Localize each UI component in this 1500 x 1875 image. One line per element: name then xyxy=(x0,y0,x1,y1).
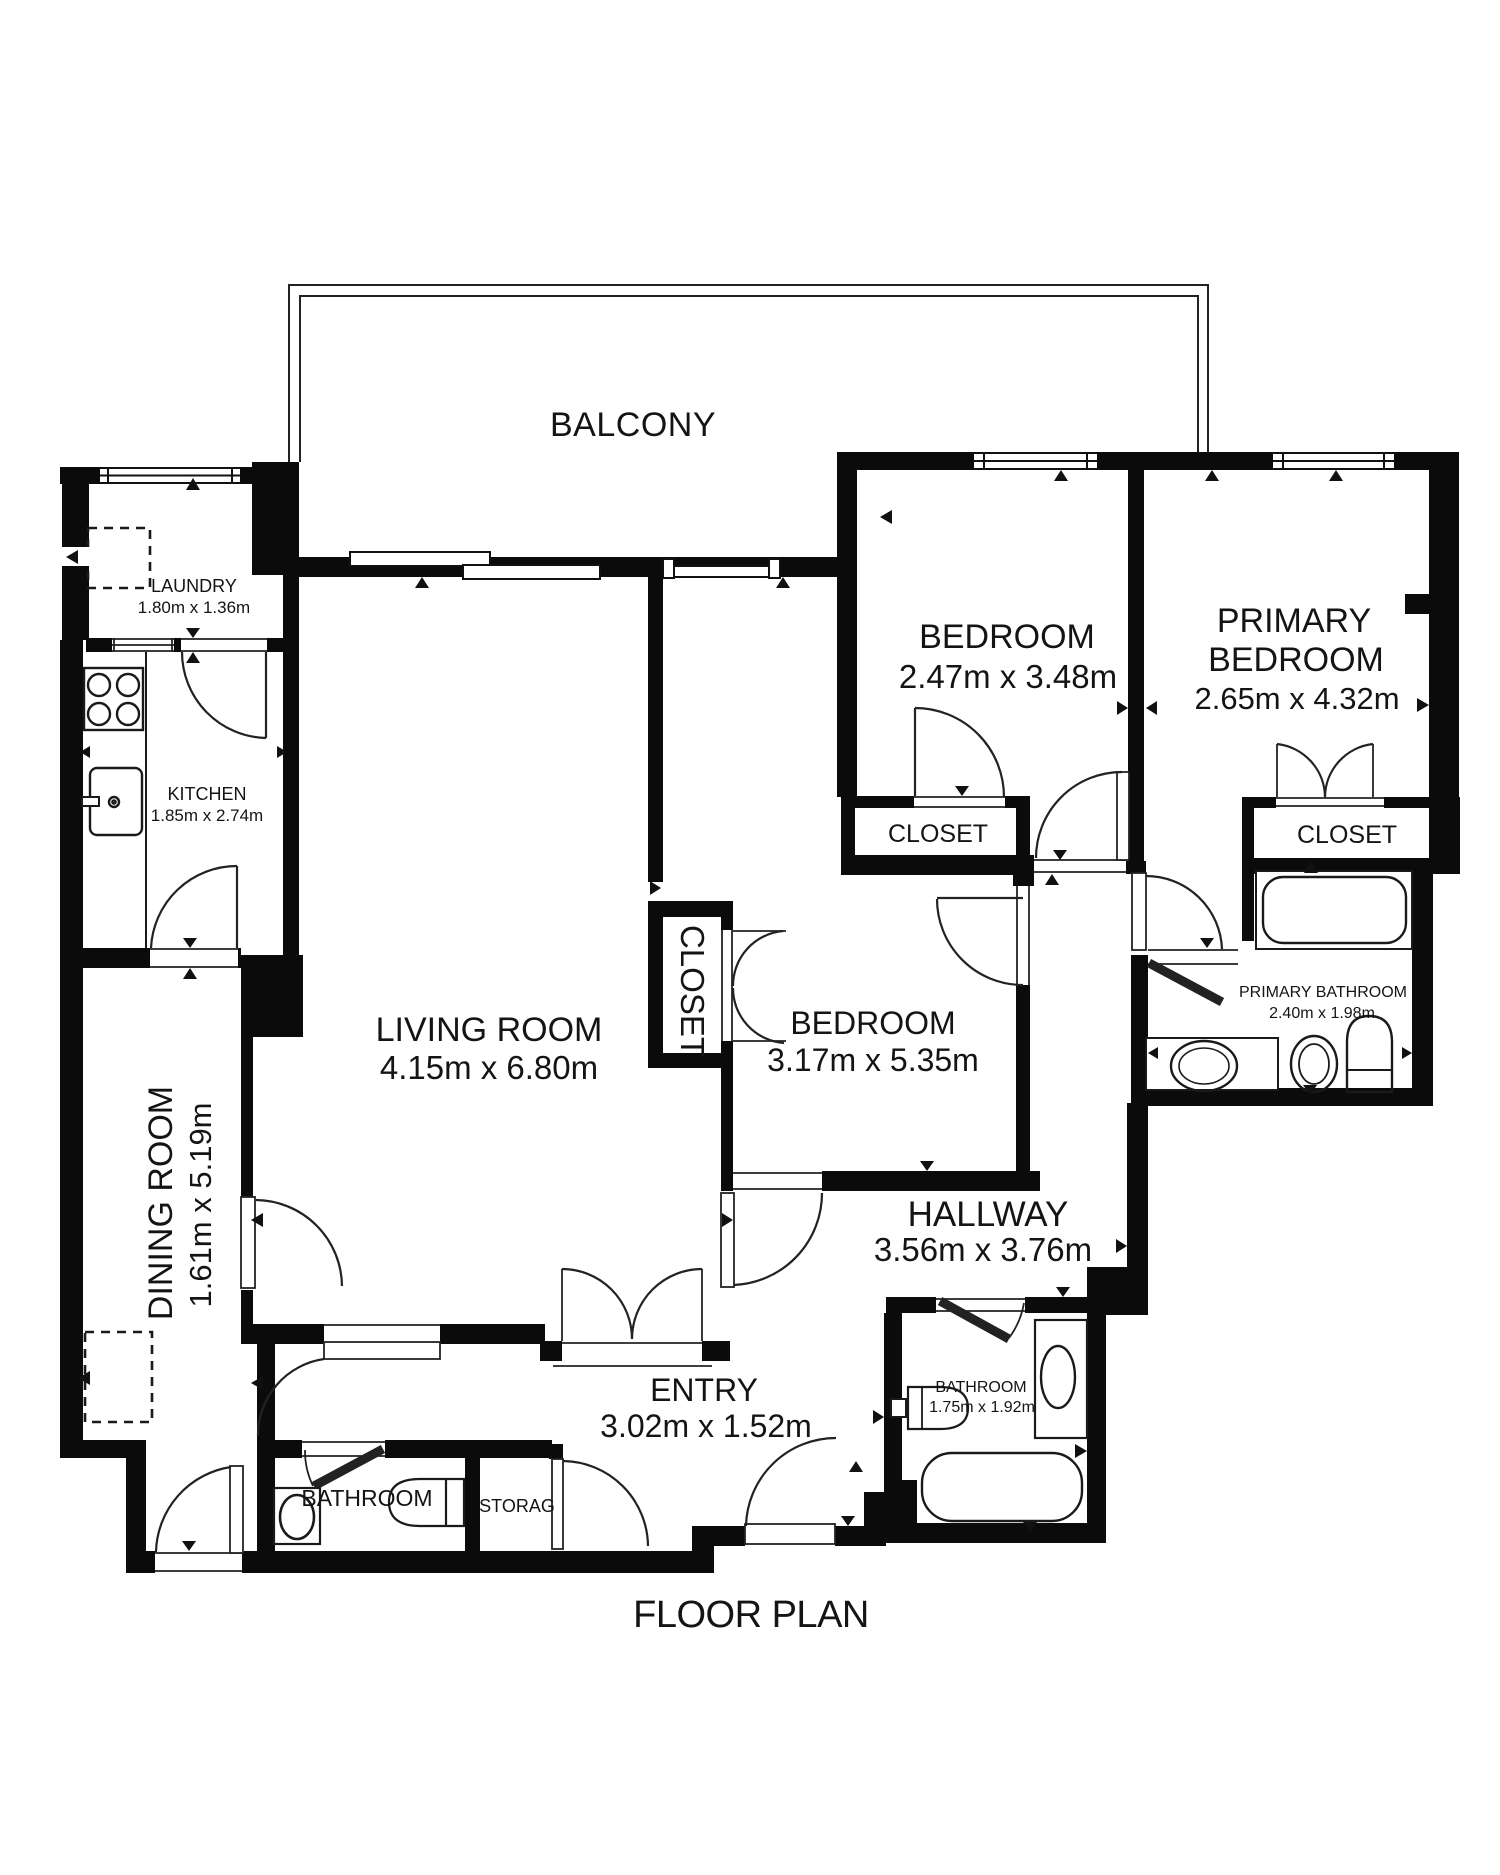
svg-text:BATHROOM: BATHROOM xyxy=(301,1485,432,1511)
svg-text:LIVING ROOM: LIVING ROOM xyxy=(376,1011,603,1049)
svg-text:2.65m x 4.32m: 2.65m x 4.32m xyxy=(1194,681,1399,716)
svg-text:4.15m x 6.80m: 4.15m x 6.80m xyxy=(380,1049,598,1086)
svg-text:2.47m x 3.48m: 2.47m x 3.48m xyxy=(899,658,1117,695)
svg-text:BEDROOM: BEDROOM xyxy=(1208,641,1384,679)
svg-text:BEDROOM: BEDROOM xyxy=(790,1005,955,1041)
svg-text:1.85m x 2.74m: 1.85m x 2.74m xyxy=(151,806,263,825)
svg-text:1.61m x 5.19m: 1.61m x 5.19m xyxy=(183,1102,218,1307)
svg-text:PRIMARY: PRIMARY xyxy=(1217,602,1371,640)
svg-text:2.40m x 1.98m: 2.40m x 1.98m xyxy=(1269,1005,1375,1022)
svg-text:3.17m x 5.35m: 3.17m x 5.35m xyxy=(767,1042,979,1078)
svg-text:BALCONY: BALCONY xyxy=(550,406,716,444)
svg-text:1.80m x 1.36m: 1.80m x 1.36m xyxy=(138,598,250,617)
svg-text:3.56m x 3.76m: 3.56m x 3.76m xyxy=(874,1231,1092,1268)
svg-text:CLOSET: CLOSET xyxy=(1297,821,1397,849)
svg-text:LAUNDRY: LAUNDRY xyxy=(151,576,237,596)
svg-text:HALLWAY: HALLWAY xyxy=(908,1195,1069,1234)
svg-text:3.02m x 1.52m: 3.02m x 1.52m xyxy=(600,1408,812,1444)
svg-text:KITCHEN: KITCHEN xyxy=(167,784,246,804)
svg-text:1.75m x 1.92m: 1.75m x 1.92m xyxy=(929,1399,1035,1416)
svg-text:STORAG: STORAG xyxy=(479,1496,555,1516)
svg-text:PRIMARY BATHROOM: PRIMARY BATHROOM xyxy=(1239,984,1407,1001)
svg-text:CLOSET: CLOSET xyxy=(888,820,988,848)
svg-text:ENTRY: ENTRY xyxy=(650,1372,758,1408)
svg-text:BEDROOM: BEDROOM xyxy=(919,618,1095,656)
svg-text:DINING ROOM: DINING ROOM xyxy=(142,1086,180,1320)
svg-text:BATHROOM: BATHROOM xyxy=(935,1379,1026,1396)
svg-text:FLOOR PLAN: FLOOR PLAN xyxy=(633,1594,869,1636)
svg-text:CLOSET: CLOSET xyxy=(674,925,711,1057)
